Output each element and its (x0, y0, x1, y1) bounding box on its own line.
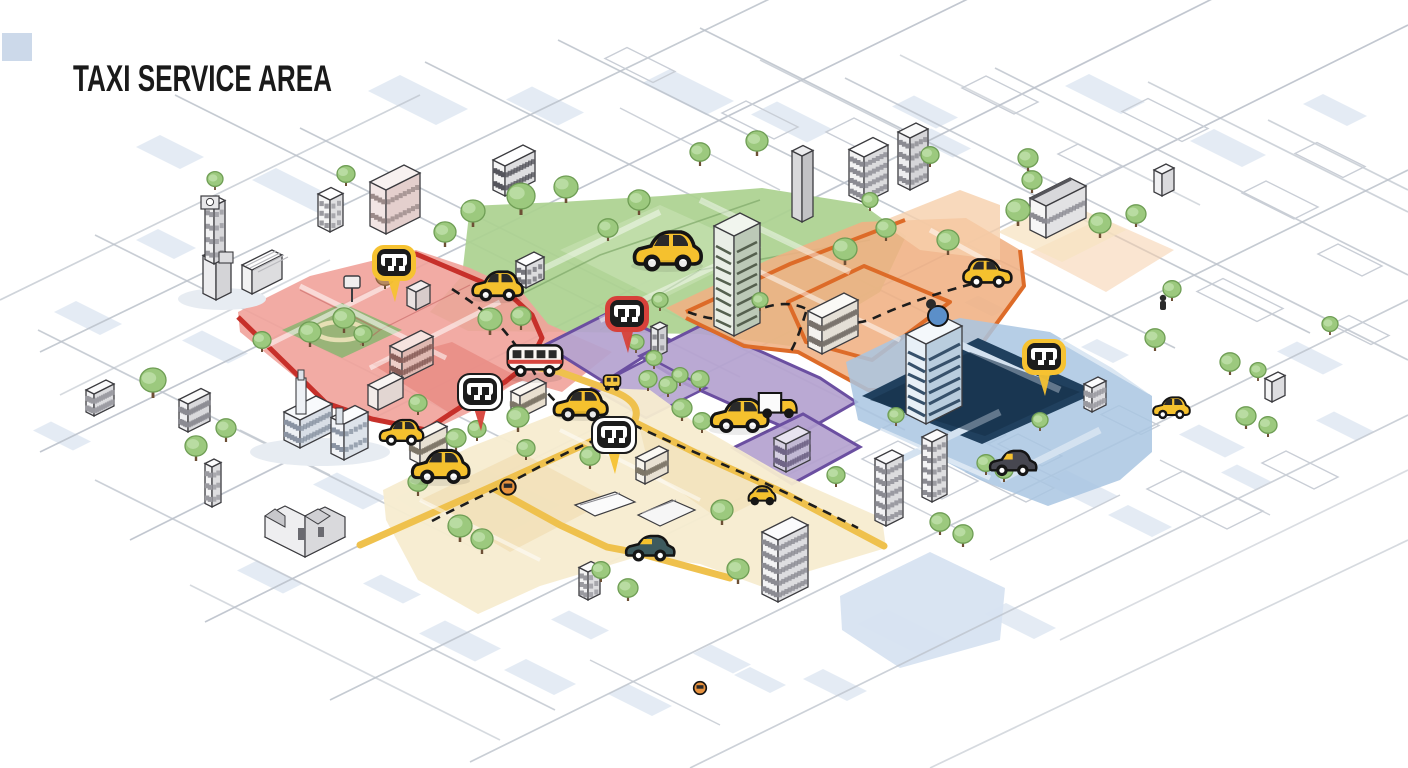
svg-text:TAXI SERVICE AREA: TAXI SERVICE AREA (73, 58, 332, 99)
